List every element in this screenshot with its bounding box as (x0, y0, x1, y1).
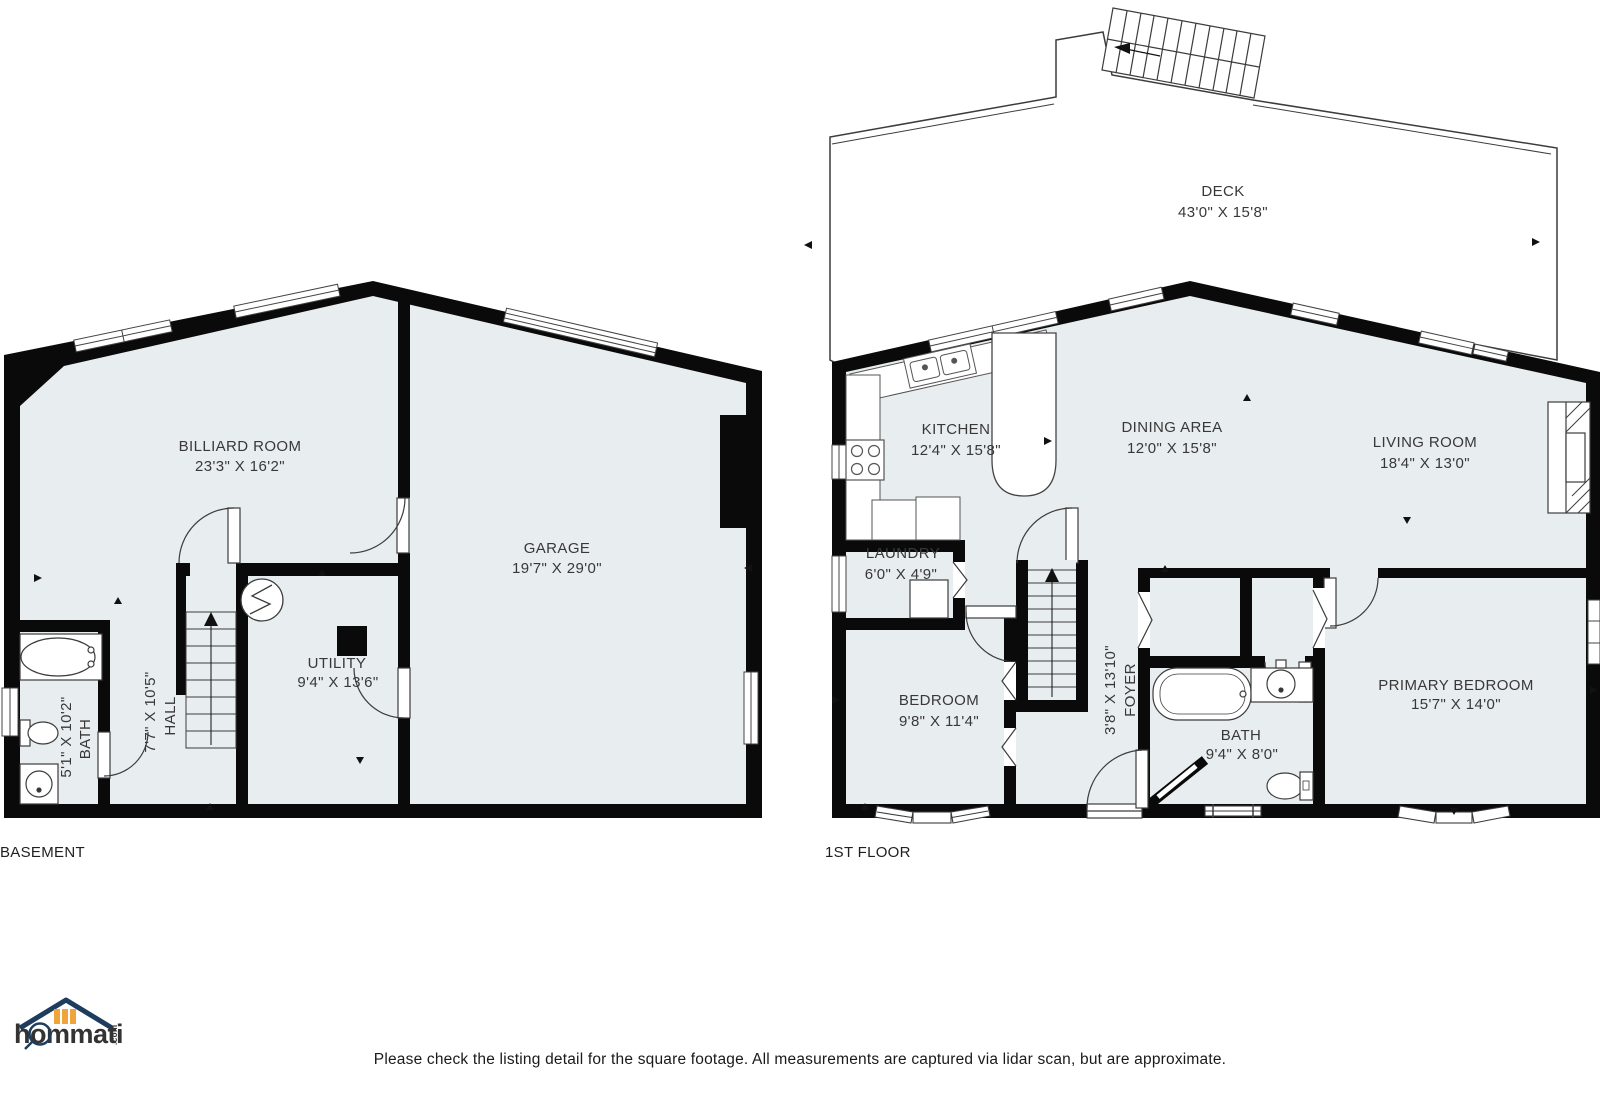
furnace-icon (241, 579, 283, 621)
toilet-icon (20, 720, 58, 746)
basement-title: BASEMENT (0, 844, 85, 861)
first-floor-stairs (1028, 560, 1076, 700)
kitchen-island (992, 333, 1056, 496)
room-dims-dining: 12'0" X 15'8" (1127, 440, 1217, 457)
room-label-bath-basement: BATH (77, 719, 94, 760)
room-dims-billiard: 23'3" X 16'2" (195, 458, 285, 475)
room-dims-bath-first: 9'4" X 8'0" (1206, 746, 1279, 763)
room-dims-bath-basement: 5'1" X 10'2" (58, 696, 75, 777)
water-heater-icon (337, 626, 367, 656)
bathtub2-icon (1153, 668, 1251, 720)
room-label-deck: DECK (1201, 183, 1244, 200)
room-dims-utility: 9'4" X 13'6" (297, 674, 378, 691)
room-dims-primary: 15'7" X 14'0" (1411, 696, 1501, 713)
room-label-hall: HALL (162, 696, 179, 735)
floor-plan-drawing: BILLIARD ROOM 23'3" X 16'2" GARAGE 19'7"… (0, 0, 1600, 1093)
sink-vanity-icon (20, 764, 58, 804)
room-label-bath-first: BATH (1221, 727, 1262, 744)
room-label-kitchen: KITCHEN (922, 421, 991, 438)
disclaimer-text: Please check the listing detail for the … (0, 1051, 1600, 1069)
garage-door-panel (720, 415, 758, 528)
room-dims-kitchen: 12'4" X 15'8" (911, 442, 1001, 459)
room-label-dining: DINING AREA (1121, 419, 1222, 436)
room-label-bedroom: BEDROOM (899, 692, 979, 709)
room-label-utility: UTILITY (308, 655, 367, 672)
room-label-primary: PRIMARY BEDROOM (1378, 677, 1533, 694)
hommati-logo: hommati .com (14, 1000, 123, 1049)
logo-tld-text: .com (110, 1024, 119, 1045)
room-label-laundry: LAUNDRY (866, 545, 940, 562)
room-dims-foyer: 3'8" X 13'10" (1102, 645, 1119, 735)
toilet2-icon (1267, 772, 1313, 800)
floor-plan-page: BILLIARD ROOM 23'3" X 16'2" GARAGE 19'7"… (0, 0, 1600, 1093)
washer-icon (910, 580, 948, 618)
bathtub-icon (20, 634, 102, 680)
first-floor-title: 1ST FLOOR (825, 844, 911, 861)
stove-icon (846, 440, 884, 480)
room-dims-hall: 7'7" X 10'5" (142, 671, 159, 752)
basement-floor (20, 296, 746, 804)
room-label-living: LIVING ROOM (1373, 434, 1477, 451)
room-dims-laundry: 6'0" X 4'9" (865, 566, 938, 583)
room-dims-garage: 19'7" X 29'0" (512, 560, 602, 577)
room-dims-living: 18'4" X 13'0" (1380, 455, 1470, 472)
room-label-garage: GARAGE (524, 540, 591, 557)
room-label-billiard: BILLIARD ROOM (179, 438, 302, 455)
room-label-foyer: FOYER (1122, 663, 1139, 717)
room-dims-bedroom: 9'8" X 11'4" (899, 713, 979, 730)
fireplace-icon (1548, 402, 1590, 513)
room-dims-deck: 43'0" X 15'8" (1178, 204, 1268, 221)
